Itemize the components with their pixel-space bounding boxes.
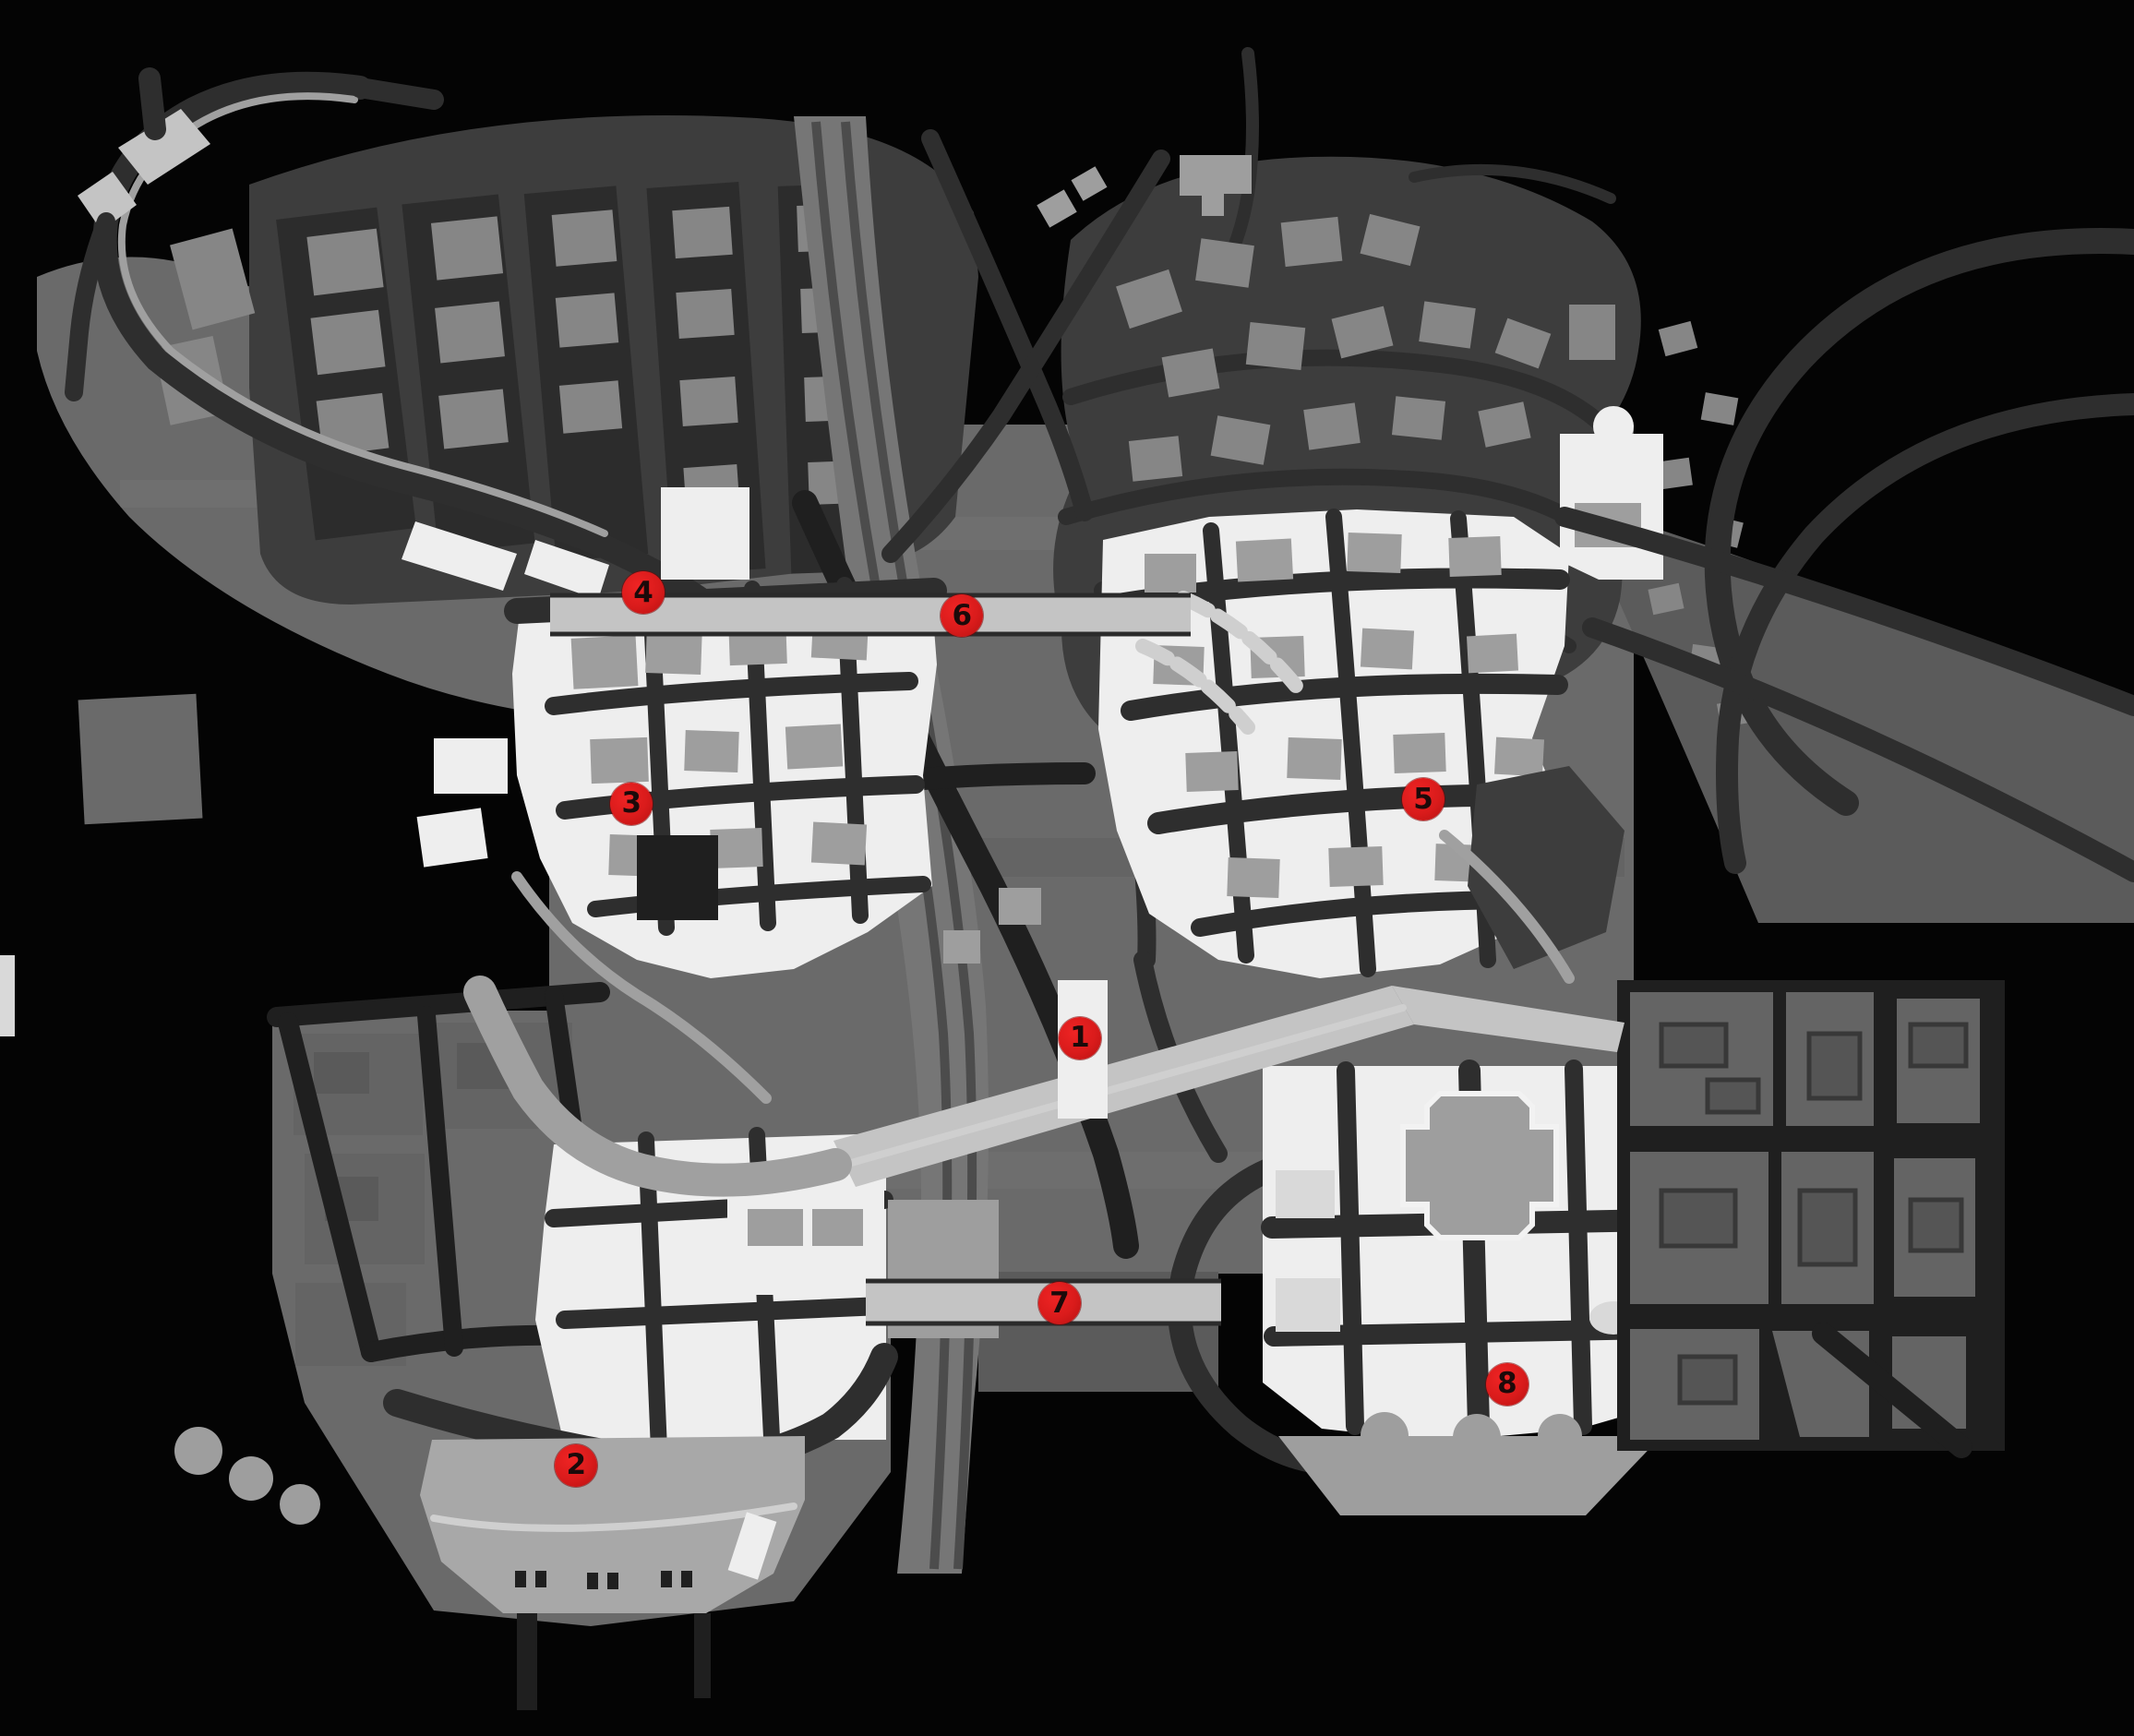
marker-layer: 12345678 xyxy=(0,0,2134,1736)
marker-number: 2 xyxy=(566,1451,586,1479)
marker-number: 8 xyxy=(1497,1370,1517,1398)
game-map-screenshot: 12345678 xyxy=(0,0,2134,1736)
marker-number: 6 xyxy=(952,602,972,630)
map-marker-3[interactable]: 3 xyxy=(610,783,653,825)
map-marker-4[interactable]: 4 xyxy=(622,571,665,614)
map-marker-8[interactable]: 8 xyxy=(1486,1363,1529,1406)
map-marker-6[interactable]: 6 xyxy=(941,594,983,637)
marker-number: 4 xyxy=(633,579,653,607)
marker-number: 7 xyxy=(1049,1289,1070,1318)
marker-number: 5 xyxy=(1413,785,1433,814)
map-marker-1[interactable]: 1 xyxy=(1059,1017,1101,1060)
marker-number: 3 xyxy=(622,789,642,818)
marker-number: 1 xyxy=(1070,1024,1090,1052)
map-marker-2[interactable]: 2 xyxy=(555,1444,597,1487)
map-marker-7[interactable]: 7 xyxy=(1038,1282,1081,1324)
map-marker-5[interactable]: 5 xyxy=(1402,778,1445,820)
